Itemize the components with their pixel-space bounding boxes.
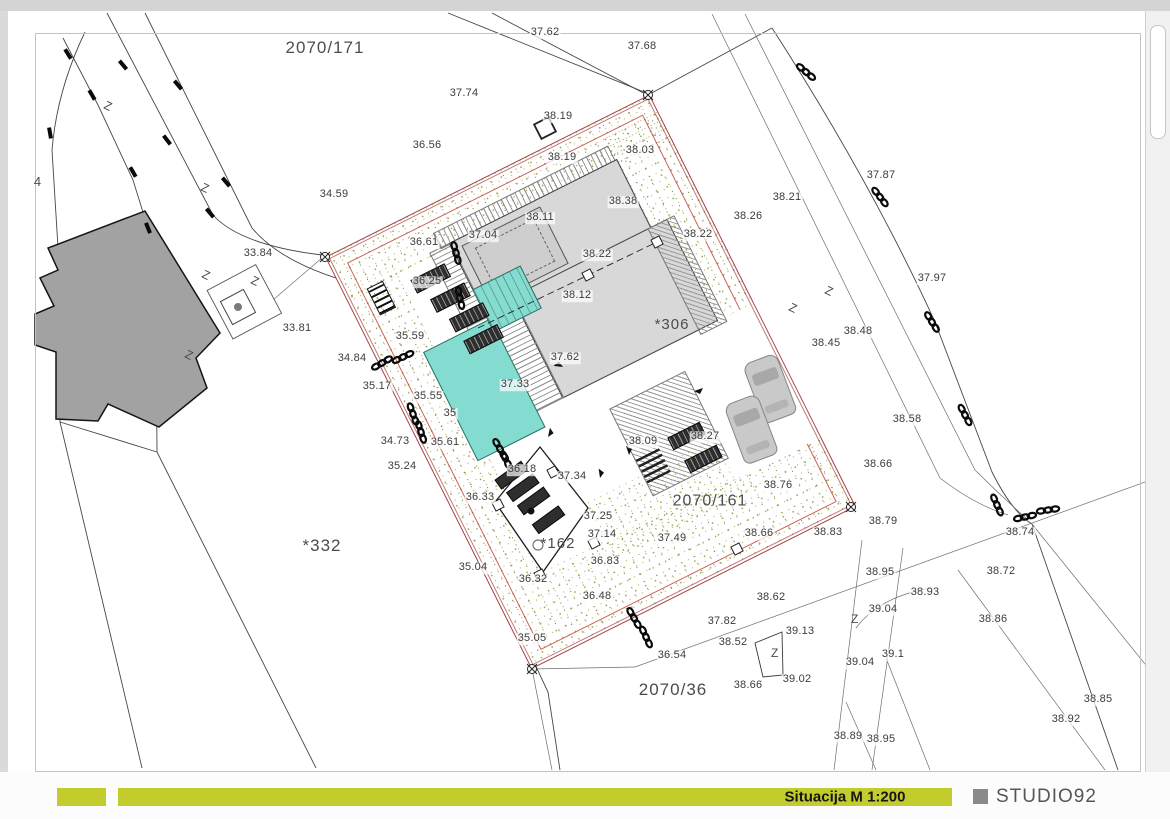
- drawing-title: Situacija M 1:200: [785, 789, 906, 806]
- elevation-label: 37.34: [557, 471, 588, 483]
- elevation-label: 34.73: [380, 436, 411, 448]
- elevation-label: 36.18: [507, 464, 538, 476]
- elevation-label: 37.49: [657, 533, 688, 545]
- elevation-label: 38.62: [756, 592, 787, 604]
- elevation-label: 38.45: [811, 338, 842, 350]
- elevation-label: 38.85: [1083, 694, 1114, 706]
- elevation-label: 37.97: [917, 273, 948, 285]
- elevation-label: 38.19: [543, 111, 574, 123]
- scrollbar[interactable]: [1145, 11, 1170, 819]
- elevation-label: 38.52: [718, 637, 749, 649]
- elevation-label: 39.02: [782, 674, 813, 686]
- plot-label: *332: [302, 537, 343, 555]
- elevation-label: 35.04: [458, 562, 489, 574]
- elevation-label: 38.38: [608, 196, 639, 208]
- elevation-label: 36.32: [518, 574, 549, 586]
- sheet-border: [35, 33, 1141, 772]
- elevation-label: 38.95: [866, 734, 897, 746]
- site-plan-canvas: ZZZZZZZZZ 37.6237.6837.7438.1936.5638.19…: [0, 0, 1170, 819]
- elevation-label: 36.56: [412, 140, 443, 152]
- elevation-label: 38.27: [690, 431, 721, 443]
- elevation-label: 38.09: [628, 436, 659, 448]
- elevation-label: 38.83: [813, 527, 844, 539]
- elevation-label: 35.55: [413, 391, 444, 403]
- elevation-label: 38.22: [683, 229, 714, 241]
- elevation-label: 37.87: [866, 170, 897, 182]
- elevation-label: 38.66: [733, 680, 764, 692]
- window-left-edge: [0, 11, 8, 819]
- elevation-label: 37.82: [707, 616, 738, 628]
- elevation-label: 38.76: [763, 480, 794, 492]
- elevation-label: 39.1: [881, 649, 905, 661]
- window-top-edge: [0, 0, 1170, 11]
- scrollbar-thumb[interactable]: [1150, 25, 1166, 139]
- elevation-label: 35: [443, 408, 458, 420]
- elevation-label: 37.33: [500, 379, 531, 391]
- elevation-label: 39.04: [868, 604, 899, 616]
- plot-label: 2070/161: [672, 494, 749, 511]
- elevation-label: 38.12: [562, 290, 593, 302]
- plot-label: *306: [654, 317, 691, 333]
- elevation-label: 38.66: [863, 459, 894, 471]
- elevation-label: 38.74: [1005, 527, 1036, 539]
- elevation-label: 36.54: [657, 650, 688, 662]
- elevation-label: 38.93: [910, 587, 941, 599]
- brand-square-icon: [973, 789, 988, 804]
- elevation-label: 35.05: [517, 633, 548, 645]
- elevation-label: 38.48: [843, 326, 874, 338]
- elevation-label: 33.81: [282, 323, 313, 335]
- elevation-label: 37.74: [449, 88, 480, 100]
- title-bar: Situacija M 1:200 STUDIO92: [0, 772, 1170, 819]
- elevation-label: 38.79: [868, 516, 899, 528]
- elevation-label: 34.59: [319, 189, 350, 201]
- elevation-label: 36.61: [409, 237, 440, 249]
- elevation-label: 33.84: [243, 248, 274, 260]
- elevation-label: 36.33: [465, 492, 496, 504]
- elevation-label: 36.25: [412, 276, 443, 288]
- plot-label: *162: [540, 536, 577, 552]
- elevation-label: 38.92: [1051, 714, 1082, 726]
- elevation-label: 38.19: [547, 152, 578, 164]
- elevation-label: 38.66: [744, 528, 775, 540]
- elevation-label: 38.86: [978, 614, 1009, 626]
- studio-logo: STUDIO92: [996, 786, 1097, 808]
- elevation-label: 37.68: [627, 41, 658, 53]
- elevation-label: 37.04: [468, 230, 499, 242]
- elevation-label: 35.59: [395, 331, 426, 343]
- plot-label: 2070/171: [285, 39, 366, 57]
- elevation-label: 38.95: [865, 567, 896, 579]
- elevation-label: 38.26: [733, 211, 764, 223]
- elevation-label: 37.25: [583, 511, 614, 523]
- legend-block: [57, 788, 106, 806]
- elevation-label: 34.84: [337, 353, 368, 365]
- plot-label: 4: [33, 175, 43, 189]
- elevation-label: 37.14: [587, 529, 618, 541]
- elevation-label: 39.13: [785, 626, 816, 638]
- elevation-label: 38.58: [892, 414, 923, 426]
- elevation-label: 37.62: [550, 352, 581, 364]
- elevation-label: 38.89: [833, 731, 864, 743]
- elevation-label: 39.04: [845, 657, 876, 669]
- elevation-label: 38.03: [625, 145, 656, 157]
- elevation-label: 38.72: [986, 566, 1017, 578]
- plot-label: 2070/36: [638, 681, 708, 699]
- elevation-label: 38.21: [772, 192, 803, 204]
- elevation-label: 37.62: [530, 27, 561, 39]
- elevation-label: 35.17: [362, 381, 393, 393]
- elevation-label: 38.11: [525, 212, 555, 224]
- elevation-label: 36.48: [582, 591, 613, 603]
- elevation-label: 36.83: [590, 556, 621, 568]
- elevation-label: 38.22: [582, 249, 613, 261]
- elevation-label: 35.61: [430, 437, 461, 449]
- elevation-label: 35.24: [387, 461, 418, 473]
